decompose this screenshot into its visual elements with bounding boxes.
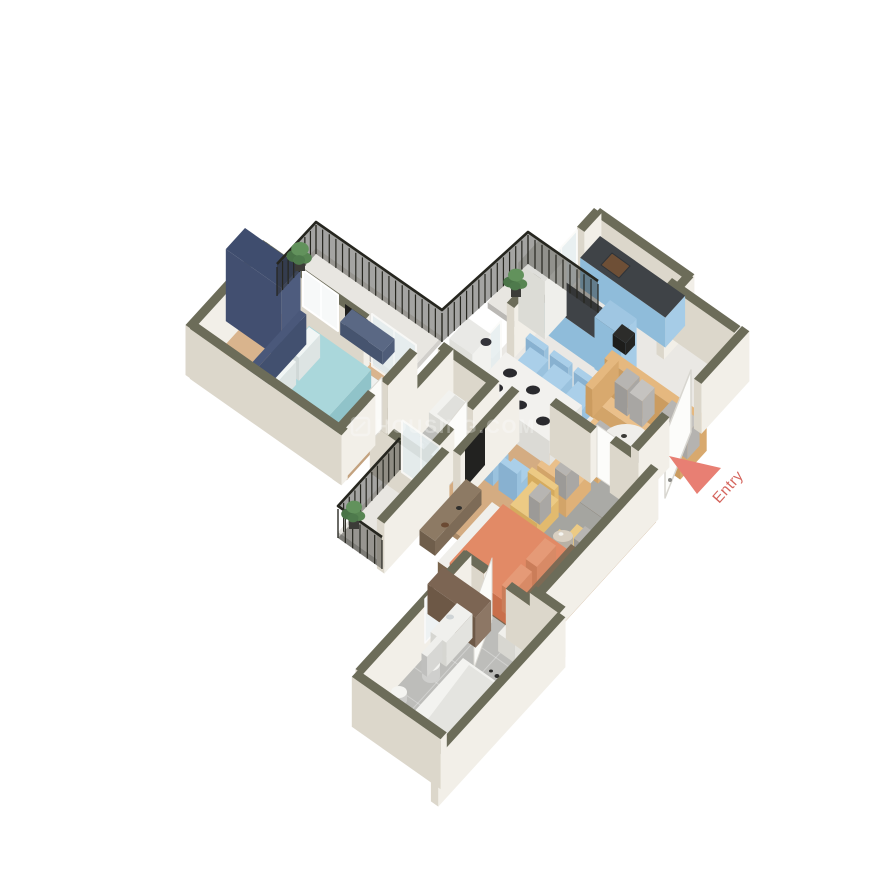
master-bath-south-wall-side [441,732,447,789]
console-decor-2 [441,523,449,528]
scene [186,208,750,807]
master-north-wall-a-side [591,427,597,484]
balcony-plant-2-foliage [510,282,521,291]
balcony-plant-1-foliage [291,242,309,256]
coffee-table-decor [621,434,627,438]
kitchen-west-wall-b-side [507,303,514,358]
side-table-candle [559,532,564,536]
floor-plan-image: Entry HOUSING.COM [0,0,870,870]
watermark-text: HOUSING.COM [376,417,536,438]
tub-faucet-2 [489,670,493,673]
balcony-plant-3-foliage [346,501,362,514]
washing-machine-door [481,338,492,346]
sofa-arm-left-side [586,385,593,418]
entry-door-knob [668,478,672,482]
balcony-plant-3-foliage [348,514,359,523]
balcony-plant-1-foliage [293,255,305,265]
plate-1 [503,369,517,378]
plate-2 [526,386,540,395]
living-east-wall-a-side [694,379,701,434]
watermark: HOUSING.COM [352,417,536,438]
vanity-basin [446,615,454,620]
toilet-tank-side [422,653,428,677]
isometric-floor-plan: Entry HOUSING.COM [0,0,870,870]
master-side-table [553,530,573,542]
balcony-plant-2-foliage [508,269,524,282]
plate-6 [536,417,550,426]
bedroom2-south-wall-side [342,429,348,486]
console-decor-1 [456,506,462,510]
